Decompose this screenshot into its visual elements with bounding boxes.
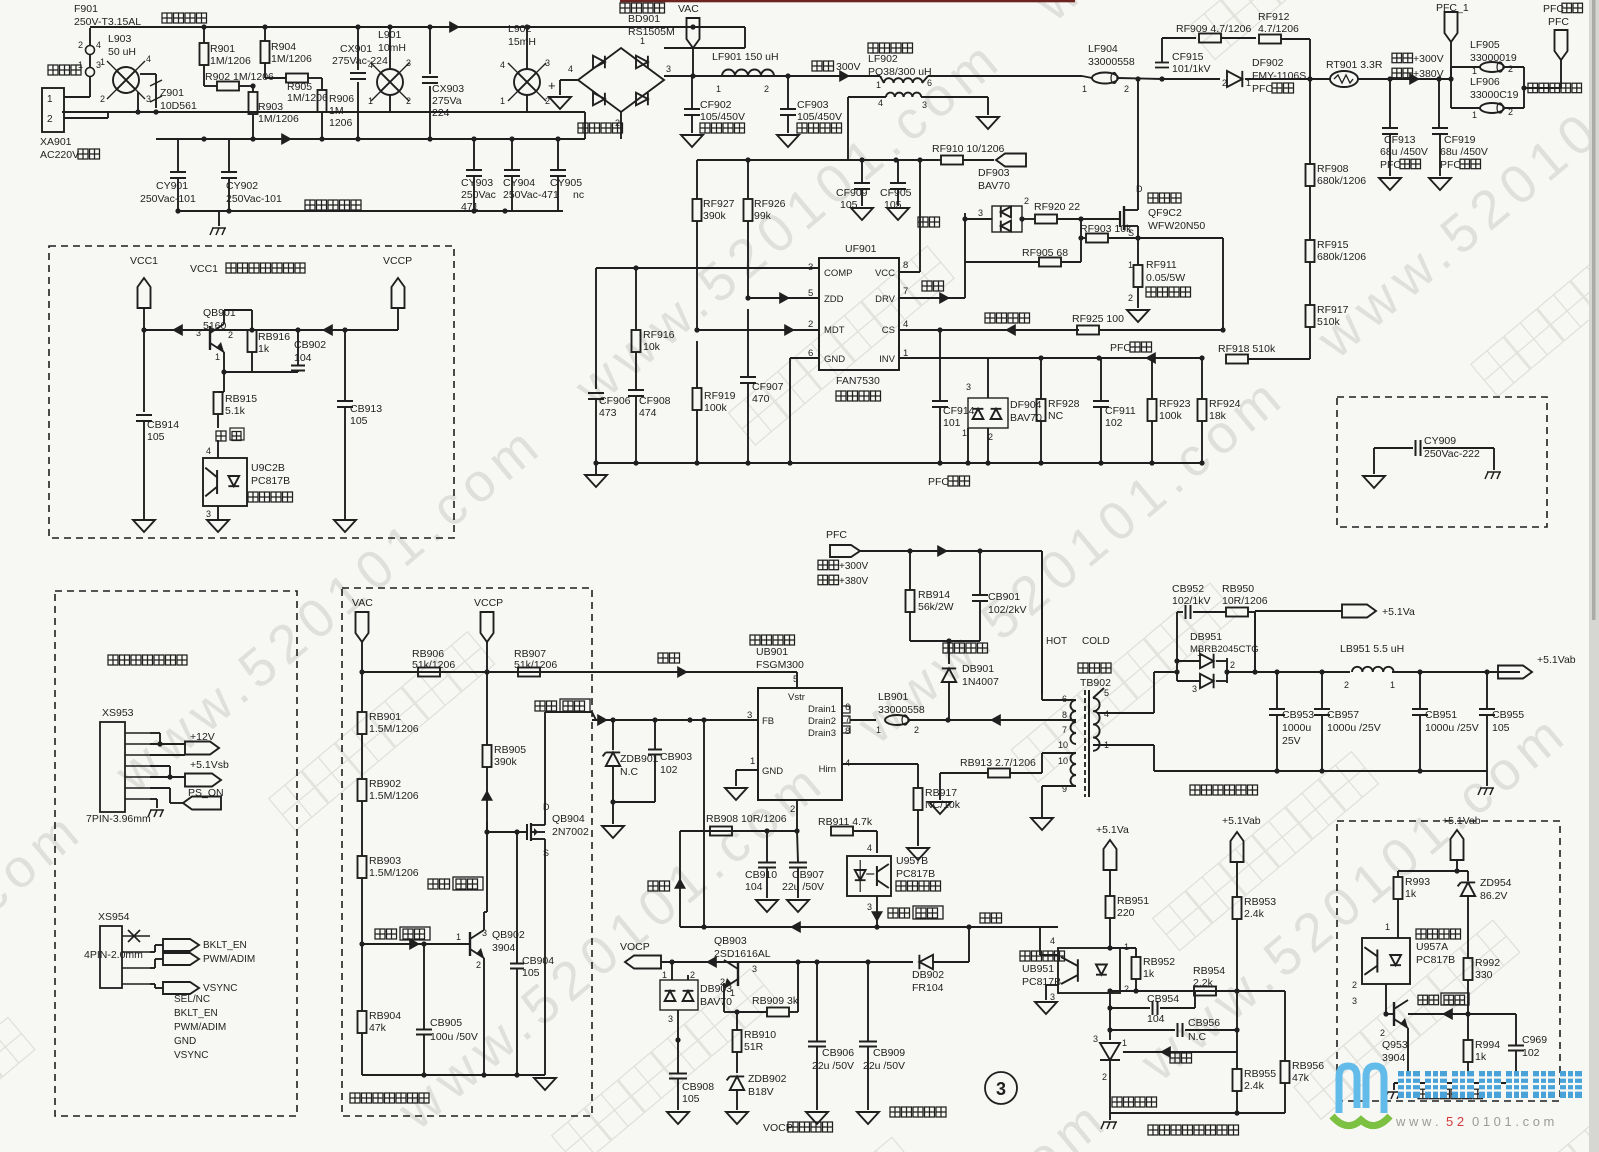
- svg-text:RF924: RF924: [1209, 398, 1241, 410]
- svg-text:4: 4: [96, 40, 101, 50]
- svg-text:CY901: CY901: [156, 180, 188, 192]
- svg-text:CB955: CB955: [1492, 709, 1524, 721]
- svg-text:L903: L903: [108, 33, 132, 45]
- svg-text:U957B: U957B: [896, 855, 928, 867]
- svg-text:CB901: CB901: [988, 591, 1020, 603]
- svg-text:RF928: RF928: [1048, 398, 1080, 410]
- svg-text:102: 102: [1522, 1047, 1540, 1059]
- svg-text:+5.1Vab: +5.1Vab: [1442, 815, 1481, 827]
- svg-text:10: 10: [1058, 756, 1068, 766]
- svg-text:MDT: MDT: [824, 325, 845, 336]
- svg-text:CY905: CY905: [550, 177, 582, 189]
- svg-text:CB957: CB957: [1327, 709, 1359, 721]
- svg-text:4: 4: [903, 319, 908, 330]
- svg-text:99k: 99k: [754, 210, 772, 222]
- svg-text:1: 1: [1122, 1038, 1127, 1048]
- svg-text:105: 105: [522, 967, 540, 979]
- svg-text:PWM/ADIM: PWM/ADIM: [174, 1022, 226, 1033]
- svg-text:104: 104: [1147, 1013, 1165, 1025]
- svg-text:RF911: RF911: [1146, 259, 1177, 271]
- svg-text:105: 105: [682, 1093, 700, 1105]
- svg-text:10R/1206: 10R/1206: [1222, 595, 1268, 607]
- svg-text:3904: 3904: [492, 942, 516, 954]
- svg-text:105: 105: [1492, 722, 1510, 734]
- svg-text:DB903: DB903: [700, 983, 732, 995]
- svg-text:CB905: CB905: [430, 1017, 462, 1029]
- svg-text:DF903: DF903: [978, 167, 1010, 179]
- svg-text:CB904: CB904: [522, 955, 554, 967]
- svg-text:Drain1: Drain1: [808, 704, 836, 715]
- svg-text:3: 3: [966, 382, 971, 392]
- svg-text:7PIN-3.96mm: 7PIN-3.96mm: [86, 813, 151, 825]
- svg-text:PFC: PFC: [1543, 3, 1564, 15]
- svg-text:RF925 100: RF925 100: [1072, 313, 1124, 325]
- svg-text:6: 6: [1062, 694, 1067, 704]
- svg-text:104: 104: [745, 881, 763, 893]
- svg-text:2: 2: [1128, 293, 1133, 303]
- svg-text:VAC: VAC: [352, 597, 373, 609]
- svg-text:1k: 1k: [1475, 1051, 1487, 1063]
- svg-text:CB953: CB953: [1282, 709, 1314, 721]
- svg-text:WFW20N50: WFW20N50: [1148, 220, 1205, 232]
- svg-text:250Vac: 250Vac: [461, 189, 496, 201]
- svg-text:QB904: QB904: [552, 813, 585, 825]
- svg-text:CF908: CF908: [639, 395, 671, 407]
- svg-text:1.5M/1206: 1.5M/1206: [369, 867, 419, 879]
- svg-text:100k: 100k: [704, 402, 728, 414]
- svg-text:LF902: LF902: [868, 53, 898, 65]
- svg-text:2N7002: 2N7002: [552, 826, 589, 838]
- svg-text:VOCP: VOCP: [620, 941, 650, 953]
- svg-text:390k: 390k: [494, 756, 518, 768]
- svg-text:R902 1M/1206: R902 1M/1206: [205, 71, 274, 83]
- svg-text:1.5M/1206: 1.5M/1206: [369, 723, 419, 735]
- svg-text:105: 105: [884, 199, 902, 211]
- svg-text:PFC: PFC: [1440, 159, 1461, 171]
- svg-text:2.2k: 2.2k: [1193, 977, 1214, 989]
- svg-text:CB951: CB951: [1425, 709, 1457, 721]
- svg-text:CB910: CB910: [745, 869, 777, 881]
- svg-text:PC817B: PC817B: [1022, 976, 1061, 988]
- svg-text:+5.1Vab: +5.1Vab: [1222, 815, 1261, 827]
- svg-text:RB901: RB901: [369, 711, 401, 723]
- svg-text:CB903: CB903: [660, 751, 692, 763]
- svg-text:RF910 10/1206: RF910 10/1206: [932, 143, 1005, 155]
- svg-text:VCCP: VCCP: [383, 255, 412, 267]
- svg-text:10k: 10k: [643, 341, 661, 353]
- svg-text:1: 1: [47, 94, 53, 105]
- svg-text:2: 2: [47, 114, 53, 125]
- svg-text:68u /450V: 68u /450V: [1380, 146, 1428, 158]
- svg-text:RB952: RB952: [1143, 956, 1175, 968]
- svg-text:ZDB902: ZDB902: [748, 1073, 787, 1085]
- svg-text:ZDD: ZDD: [824, 294, 844, 305]
- svg-text:1: 1: [1472, 110, 1477, 120]
- svg-text:10: 10: [1058, 740, 1068, 750]
- svg-text:XA901: XA901: [40, 136, 72, 148]
- svg-text:1: 1: [1390, 680, 1395, 690]
- svg-text:3: 3: [668, 1014, 673, 1024]
- svg-text:R906: R906: [329, 93, 354, 105]
- svg-text:XS953: XS953: [102, 707, 134, 719]
- svg-text:Z901: Z901: [160, 87, 184, 99]
- svg-text:10mH: 10mH: [378, 42, 406, 54]
- svg-text:Q953: Q953: [1382, 1039, 1408, 1051]
- svg-text:PFC: PFC: [1548, 16, 1569, 28]
- svg-text:RB955: RB955: [1244, 1068, 1276, 1080]
- svg-text:GND: GND: [824, 354, 845, 365]
- svg-text:S: S: [543, 848, 549, 858]
- svg-text:LF904: LF904: [1088, 43, 1118, 55]
- svg-text:2: 2: [1344, 680, 1349, 690]
- svg-text:+5.1Va: +5.1Va: [1382, 606, 1415, 618]
- svg-text:2: 2: [406, 96, 411, 106]
- svg-text:86.2V: 86.2V: [1480, 890, 1507, 902]
- svg-text:1000u: 1000u: [1282, 722, 1311, 734]
- svg-text:RB908 10R/1206: RB908 10R/1206: [706, 813, 787, 825]
- svg-text:VCCP: VCCP: [474, 597, 503, 609]
- svg-text:RB909 3k: RB909 3k: [752, 995, 799, 1007]
- svg-text:10D561: 10D561: [160, 100, 197, 112]
- svg-text:RF927: RF927: [703, 198, 735, 210]
- svg-text:BKLT_EN: BKLT_EN: [203, 940, 247, 951]
- svg-text:1M/1206: 1M/1206: [210, 55, 251, 67]
- svg-text:INV: INV: [879, 354, 896, 365]
- svg-text:RF917: RF917: [1317, 304, 1349, 316]
- svg-text:680k/1206: 680k/1206: [1317, 251, 1366, 263]
- svg-text:2: 2: [914, 725, 919, 735]
- svg-text:2: 2: [1102, 1072, 1107, 1082]
- svg-text:QF9C2: QF9C2: [1148, 207, 1182, 219]
- svg-text:CF906: CF906: [599, 395, 631, 407]
- svg-text:RB911 4.7k: RB911 4.7k: [818, 816, 873, 828]
- svg-text:105: 105: [147, 431, 165, 443]
- svg-text:102/1kV: 102/1kV: [1172, 595, 1211, 607]
- svg-text:1k: 1k: [258, 343, 270, 355]
- svg-text:FR104: FR104: [912, 982, 944, 994]
- svg-text:2SD1616AL: 2SD1616AL: [714, 948, 771, 960]
- svg-text:QB902: QB902: [492, 929, 525, 941]
- svg-text:2: 2: [78, 40, 83, 50]
- svg-text:RF909 4.7/1206: RF909 4.7/1206: [1176, 23, 1251, 35]
- svg-text:2: 2: [100, 94, 105, 104]
- svg-text:CB906: CB906: [822, 1047, 854, 1059]
- svg-text:BKLT_EN: BKLT_EN: [174, 1008, 218, 1019]
- svg-text:2: 2: [228, 330, 233, 340]
- svg-text:FB: FB: [762, 716, 774, 727]
- svg-text:CF902: CF902: [700, 99, 732, 111]
- svg-text:3: 3: [1352, 996, 1357, 1006]
- svg-text:RB916: RB916: [258, 331, 290, 343]
- svg-text:CF907: CF907: [752, 381, 784, 393]
- svg-text:RF908: RF908: [1317, 163, 1349, 175]
- svg-text:RF903 10k: RF903 10k: [1080, 223, 1132, 235]
- svg-text:LF905: LF905: [1470, 39, 1500, 51]
- svg-text:1M/1206: 1M/1206: [287, 92, 328, 104]
- svg-text:Hirn: Hirn: [819, 764, 836, 775]
- svg-text:105/450V: 105/450V: [797, 111, 842, 123]
- svg-text:NC: NC: [1048, 410, 1064, 422]
- svg-text:RB905: RB905: [494, 744, 526, 756]
- svg-text:XS954: XS954: [98, 911, 130, 923]
- svg-text:2: 2: [808, 319, 813, 330]
- svg-text:LF906: LF906: [1470, 76, 1500, 88]
- svg-text:104: 104: [294, 352, 312, 364]
- svg-text:LB951 5.5 uH: LB951 5.5 uH: [1340, 643, 1404, 655]
- svg-text:CY903: CY903: [461, 177, 493, 189]
- svg-text:100u /50V: 100u /50V: [430, 1031, 478, 1043]
- svg-text:7: 7: [1062, 725, 1067, 735]
- svg-text:RF916: RF916: [643, 329, 675, 341]
- svg-text:2: 2: [690, 970, 695, 980]
- svg-text:U957A: U957A: [1416, 941, 1448, 953]
- svg-text:CF911: CF911: [1105, 405, 1136, 417]
- svg-text:+300V: +300V: [1413, 53, 1444, 65]
- svg-text:101/1kV: 101/1kV: [1172, 63, 1211, 75]
- svg-text:2: 2: [1124, 984, 1129, 994]
- svg-text:2: 2: [764, 84, 769, 94]
- svg-text:1M/1206: 1M/1206: [271, 53, 312, 65]
- svg-text:102: 102: [1105, 417, 1123, 429]
- svg-text:GND: GND: [762, 766, 783, 777]
- svg-text:1: 1: [1197, 648, 1202, 658]
- svg-text:RB917: RB917: [925, 787, 957, 799]
- svg-text:2: 2: [1124, 84, 1129, 94]
- svg-text:1M: 1M: [329, 105, 344, 117]
- svg-text:CF903: CF903: [797, 99, 829, 111]
- svg-text:F901: F901: [74, 3, 98, 15]
- svg-text:R903: R903: [258, 101, 283, 113]
- svg-text:2.4k: 2.4k: [1244, 1080, 1265, 1092]
- svg-text:3: 3: [1192, 684, 1197, 694]
- svg-text:4PIN-2.0mm: 4PIN-2.0mm: [84, 949, 143, 961]
- svg-text:VCC: VCC: [875, 268, 895, 279]
- svg-text:R992: R992: [1475, 957, 1500, 969]
- svg-text:15mH: 15mH: [508, 36, 536, 48]
- svg-text:1: 1: [750, 756, 755, 767]
- svg-text:VSYNC: VSYNC: [203, 983, 237, 994]
- svg-text:224: 224: [432, 107, 450, 119]
- svg-text:U9C2B: U9C2B: [251, 462, 285, 474]
- svg-text:RB950: RB950: [1222, 583, 1254, 595]
- svg-text:RB913 2.7/1206: RB913 2.7/1206: [960, 757, 1036, 769]
- svg-text:68u /450V: 68u /450V: [1440, 146, 1488, 158]
- svg-text:4.7/1206: 4.7/1206: [1258, 23, 1299, 35]
- svg-text:+380V: +380V: [839, 576, 869, 587]
- svg-text:nc: nc: [573, 189, 584, 201]
- svg-text:CB907: CB907: [792, 869, 824, 881]
- svg-text:CB913: CB913: [350, 403, 382, 415]
- svg-text:RF919: RF919: [704, 390, 736, 402]
- svg-text:CB914: CB914: [147, 419, 179, 431]
- svg-text:VSYNC: VSYNC: [174, 1050, 208, 1061]
- svg-text:CF914: CF914: [943, 405, 975, 417]
- svg-text:RF912: RF912: [1258, 11, 1290, 23]
- svg-text:51k/1206: 51k/1206: [514, 659, 557, 671]
- svg-text:PWM/ADIM: PWM/ADIM: [203, 954, 255, 965]
- svg-text:N.C: N.C: [620, 766, 639, 778]
- svg-text:PQ38/300 uH: PQ38/300 uH: [868, 66, 932, 78]
- svg-text:1: 1: [962, 428, 967, 438]
- svg-text:1: 1: [1128, 260, 1133, 270]
- svg-text:CF915: CF915: [1172, 51, 1204, 63]
- svg-text:+5.1Vsb: +5.1Vsb: [190, 759, 229, 771]
- svg-text:GND: GND: [174, 1036, 196, 1047]
- svg-text:PC817B: PC817B: [251, 475, 290, 487]
- svg-text:1.5M/1206: 1.5M/1206: [369, 790, 419, 802]
- svg-text:FSGM300: FSGM300: [756, 659, 804, 671]
- svg-text:+300V: +300V: [839, 561, 869, 572]
- svg-text:390k: 390k: [703, 210, 727, 222]
- svg-text:CB908: CB908: [682, 1081, 714, 1093]
- svg-text:275Vac-224: 275Vac-224: [332, 55, 388, 67]
- svg-text:CB954: CB954: [1147, 993, 1179, 1005]
- svg-text:3: 3: [545, 58, 550, 68]
- svg-text:CF913: CF913: [1384, 134, 1416, 146]
- svg-text:CB952: CB952: [1172, 583, 1204, 595]
- svg-text:250Vac-101: 250Vac-101: [226, 193, 282, 205]
- svg-text:3904: 3904: [1382, 1052, 1406, 1064]
- svg-text:2: 2: [1352, 980, 1357, 990]
- svg-text:PFC: PFC: [928, 476, 949, 488]
- svg-text:5 2: 5 2: [1446, 1114, 1464, 1129]
- svg-text:1: 1: [876, 725, 881, 735]
- svg-text:RS1505M: RS1505M: [628, 26, 675, 38]
- svg-text:RB954: RB954: [1193, 965, 1225, 977]
- svg-text:3: 3: [978, 208, 983, 218]
- svg-text:PC817B: PC817B: [1416, 954, 1455, 966]
- svg-text:1N4007: 1N4007: [962, 676, 999, 688]
- svg-text:1: 1: [1385, 922, 1390, 932]
- svg-text:275Va: 275Va: [432, 95, 462, 107]
- svg-text:BAV70: BAV70: [700, 996, 732, 1008]
- svg-text:FMY-1106S: FMY-1106S: [1252, 70, 1306, 82]
- svg-text:4: 4: [878, 98, 883, 108]
- svg-text:5: 5: [1104, 688, 1109, 698]
- svg-text:250Vac-222: 250Vac-222: [1424, 448, 1480, 460]
- svg-text:1: 1: [215, 352, 220, 362]
- svg-text:33000558: 33000558: [878, 704, 925, 716]
- svg-text:RF918 510k: RF918 510k: [1218, 343, 1276, 355]
- svg-text:33000C19: 33000C19: [1470, 89, 1519, 101]
- svg-text:470: 470: [752, 393, 770, 405]
- svg-text:680k/1206: 680k/1206: [1317, 175, 1366, 187]
- svg-text:7: 7: [903, 286, 908, 297]
- svg-text:FAN7530: FAN7530: [836, 375, 880, 387]
- svg-text:COMP: COMP: [824, 268, 853, 279]
- svg-text:2.4k: 2.4k: [1244, 908, 1265, 920]
- svg-text:3: 3: [996, 1079, 1006, 1099]
- svg-text:3: 3: [206, 509, 211, 519]
- svg-text:Vstr: Vstr: [788, 692, 805, 703]
- svg-text:2: 2: [1222, 78, 1227, 88]
- svg-text:1M/1206: 1M/1206: [258, 113, 299, 125]
- svg-text:105: 105: [350, 415, 368, 427]
- svg-text:47k: 47k: [1292, 1072, 1310, 1084]
- svg-text:UB901: UB901: [756, 646, 788, 658]
- svg-text:56k/2W: 56k/2W: [918, 601, 954, 613]
- svg-text:RB903: RB903: [369, 855, 401, 867]
- svg-text:50 uH: 50 uH: [108, 46, 136, 58]
- svg-text:RB910: RB910: [744, 1029, 776, 1041]
- svg-text:2: 2: [476, 960, 481, 970]
- svg-text:6: 6: [927, 78, 932, 88]
- svg-text:UB951: UB951: [1022, 963, 1054, 975]
- svg-text:RB915: RB915: [225, 393, 257, 405]
- svg-text:1: 1: [662, 970, 667, 980]
- svg-text:250Vac-101: 250Vac-101: [140, 193, 196, 205]
- svg-text:47k: 47k: [369, 1022, 387, 1034]
- svg-text:CF919: CF919: [1444, 134, 1476, 146]
- svg-text:4: 4: [500, 60, 505, 70]
- svg-text:105/450V: 105/450V: [700, 111, 745, 123]
- svg-text:CX903: CX903: [432, 83, 464, 95]
- svg-text:LB901: LB901: [878, 691, 909, 703]
- svg-text:VCC1: VCC1: [190, 263, 218, 275]
- svg-text:CF905: CF905: [880, 187, 912, 199]
- svg-text:330: 330: [1475, 969, 1493, 981]
- svg-text:0 1 0 1 . c o m: 0 1 0 1 . c o m: [1472, 1114, 1554, 1129]
- svg-text:22u /50V: 22u /50V: [863, 1060, 905, 1072]
- svg-text:CY909: CY909: [1424, 435, 1456, 447]
- svg-text:2: 2: [790, 804, 795, 815]
- svg-text:3: 3: [1093, 1034, 1098, 1044]
- svg-text:CB909: CB909: [873, 1047, 905, 1059]
- svg-text:22u /50V: 22u /50V: [782, 881, 824, 893]
- svg-text:51k/1206: 51k/1206: [412, 659, 455, 671]
- svg-text:33000558: 33000558: [1088, 56, 1135, 68]
- svg-text:22u /50V: 22u /50V: [812, 1060, 854, 1072]
- svg-text:1: 1: [716, 84, 721, 94]
- svg-text:Drain2: Drain2: [808, 716, 836, 727]
- svg-text:PFC: PFC: [1252, 83, 1273, 95]
- svg-text:5.1k: 5.1k: [225, 405, 246, 417]
- svg-text:4: 4: [1050, 936, 1055, 946]
- svg-text:CX901: CX901: [340, 43, 372, 55]
- svg-text:2: 2: [1024, 196, 1029, 206]
- svg-text:510k: 510k: [1317, 316, 1341, 328]
- svg-text:RB914: RB914: [918, 589, 950, 601]
- svg-text:4: 4: [867, 843, 872, 853]
- svg-text:RB904: RB904: [369, 1010, 401, 1022]
- svg-text:2: 2: [1508, 64, 1513, 74]
- svg-text:3: 3: [867, 902, 872, 912]
- svg-text:+5.1Vab: +5.1Vab: [1537, 654, 1576, 666]
- svg-text:PFC: PFC: [1110, 342, 1131, 354]
- svg-text:1: 1: [1124, 942, 1129, 952]
- svg-text:3: 3: [922, 100, 927, 110]
- svg-text:RF915: RF915: [1317, 239, 1349, 251]
- svg-text:CB956: CB956: [1188, 1017, 1220, 1029]
- svg-text:473: 473: [599, 407, 617, 419]
- svg-text:C969: C969: [1522, 1034, 1547, 1046]
- svg-text:8: 8: [1062, 710, 1067, 720]
- svg-text:DF902: DF902: [1252, 57, 1284, 69]
- svg-text:4: 4: [368, 60, 373, 70]
- svg-text:QB903: QB903: [714, 935, 747, 947]
- svg-text:NC/10k: NC/10k: [925, 799, 961, 811]
- svg-text:w w w .: w w w .: [1395, 1114, 1439, 1129]
- svg-text:RB956: RB956: [1292, 1060, 1324, 1072]
- svg-text:3: 3: [752, 964, 757, 974]
- svg-text:0.05/5W: 0.05/5W: [1146, 272, 1185, 284]
- svg-text:PC817B: PC817B: [896, 868, 935, 880]
- svg-text:QB901: QB901: [203, 307, 236, 319]
- svg-text:R994: R994: [1475, 1039, 1500, 1051]
- svg-text:VAC: VAC: [678, 3, 699, 15]
- svg-text:LF901 150 uH: LF901 150 uH: [712, 51, 779, 63]
- svg-text:R993: R993: [1405, 876, 1430, 888]
